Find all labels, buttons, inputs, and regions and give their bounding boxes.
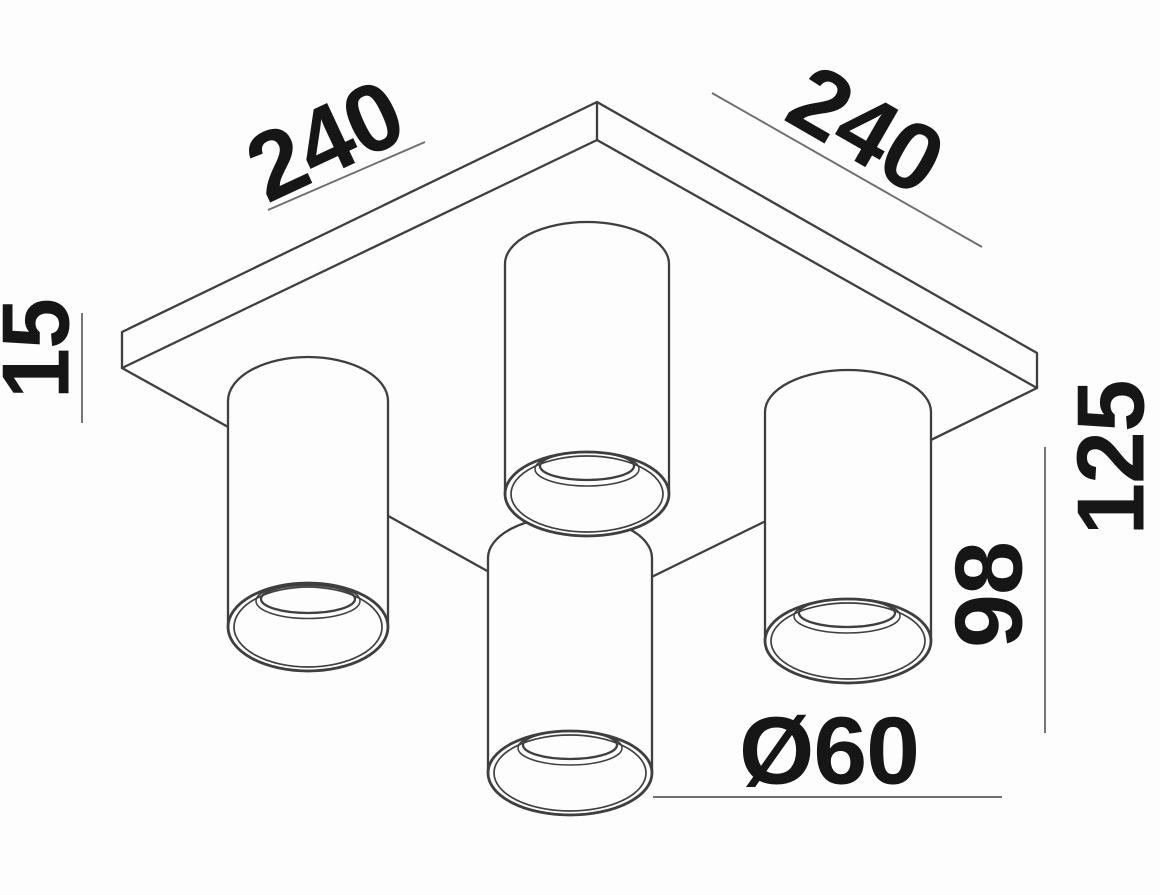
plate-depth-label: 240 bbox=[771, 44, 961, 216]
cylinder-diameter-label: Ø60 bbox=[739, 698, 919, 805]
spotlight-cylinder-front bbox=[488, 516, 652, 815]
cylinder-body bbox=[488, 516, 652, 815]
plate-thickness-label: 15 bbox=[0, 299, 90, 399]
overall-height-label: 125 bbox=[1058, 381, 1160, 536]
technical-drawing-canvas: 240 240 15 125 98 Ø60 bbox=[0, 0, 1160, 895]
spotlight-cylinder-right bbox=[765, 370, 931, 683]
cylinder-body bbox=[765, 370, 931, 683]
cylinder-body bbox=[505, 222, 669, 536]
spotlight-cylinder-back bbox=[505, 222, 669, 536]
ceiling-lamp-dimension-drawing: 240 240 15 125 98 Ø60 bbox=[0, 0, 1160, 895]
cylinder-body bbox=[228, 357, 388, 671]
spotlight-cylinder-left bbox=[228, 357, 388, 671]
cylinder-height-label: 98 bbox=[936, 542, 1043, 648]
plate-width-label: 240 bbox=[231, 59, 419, 223]
